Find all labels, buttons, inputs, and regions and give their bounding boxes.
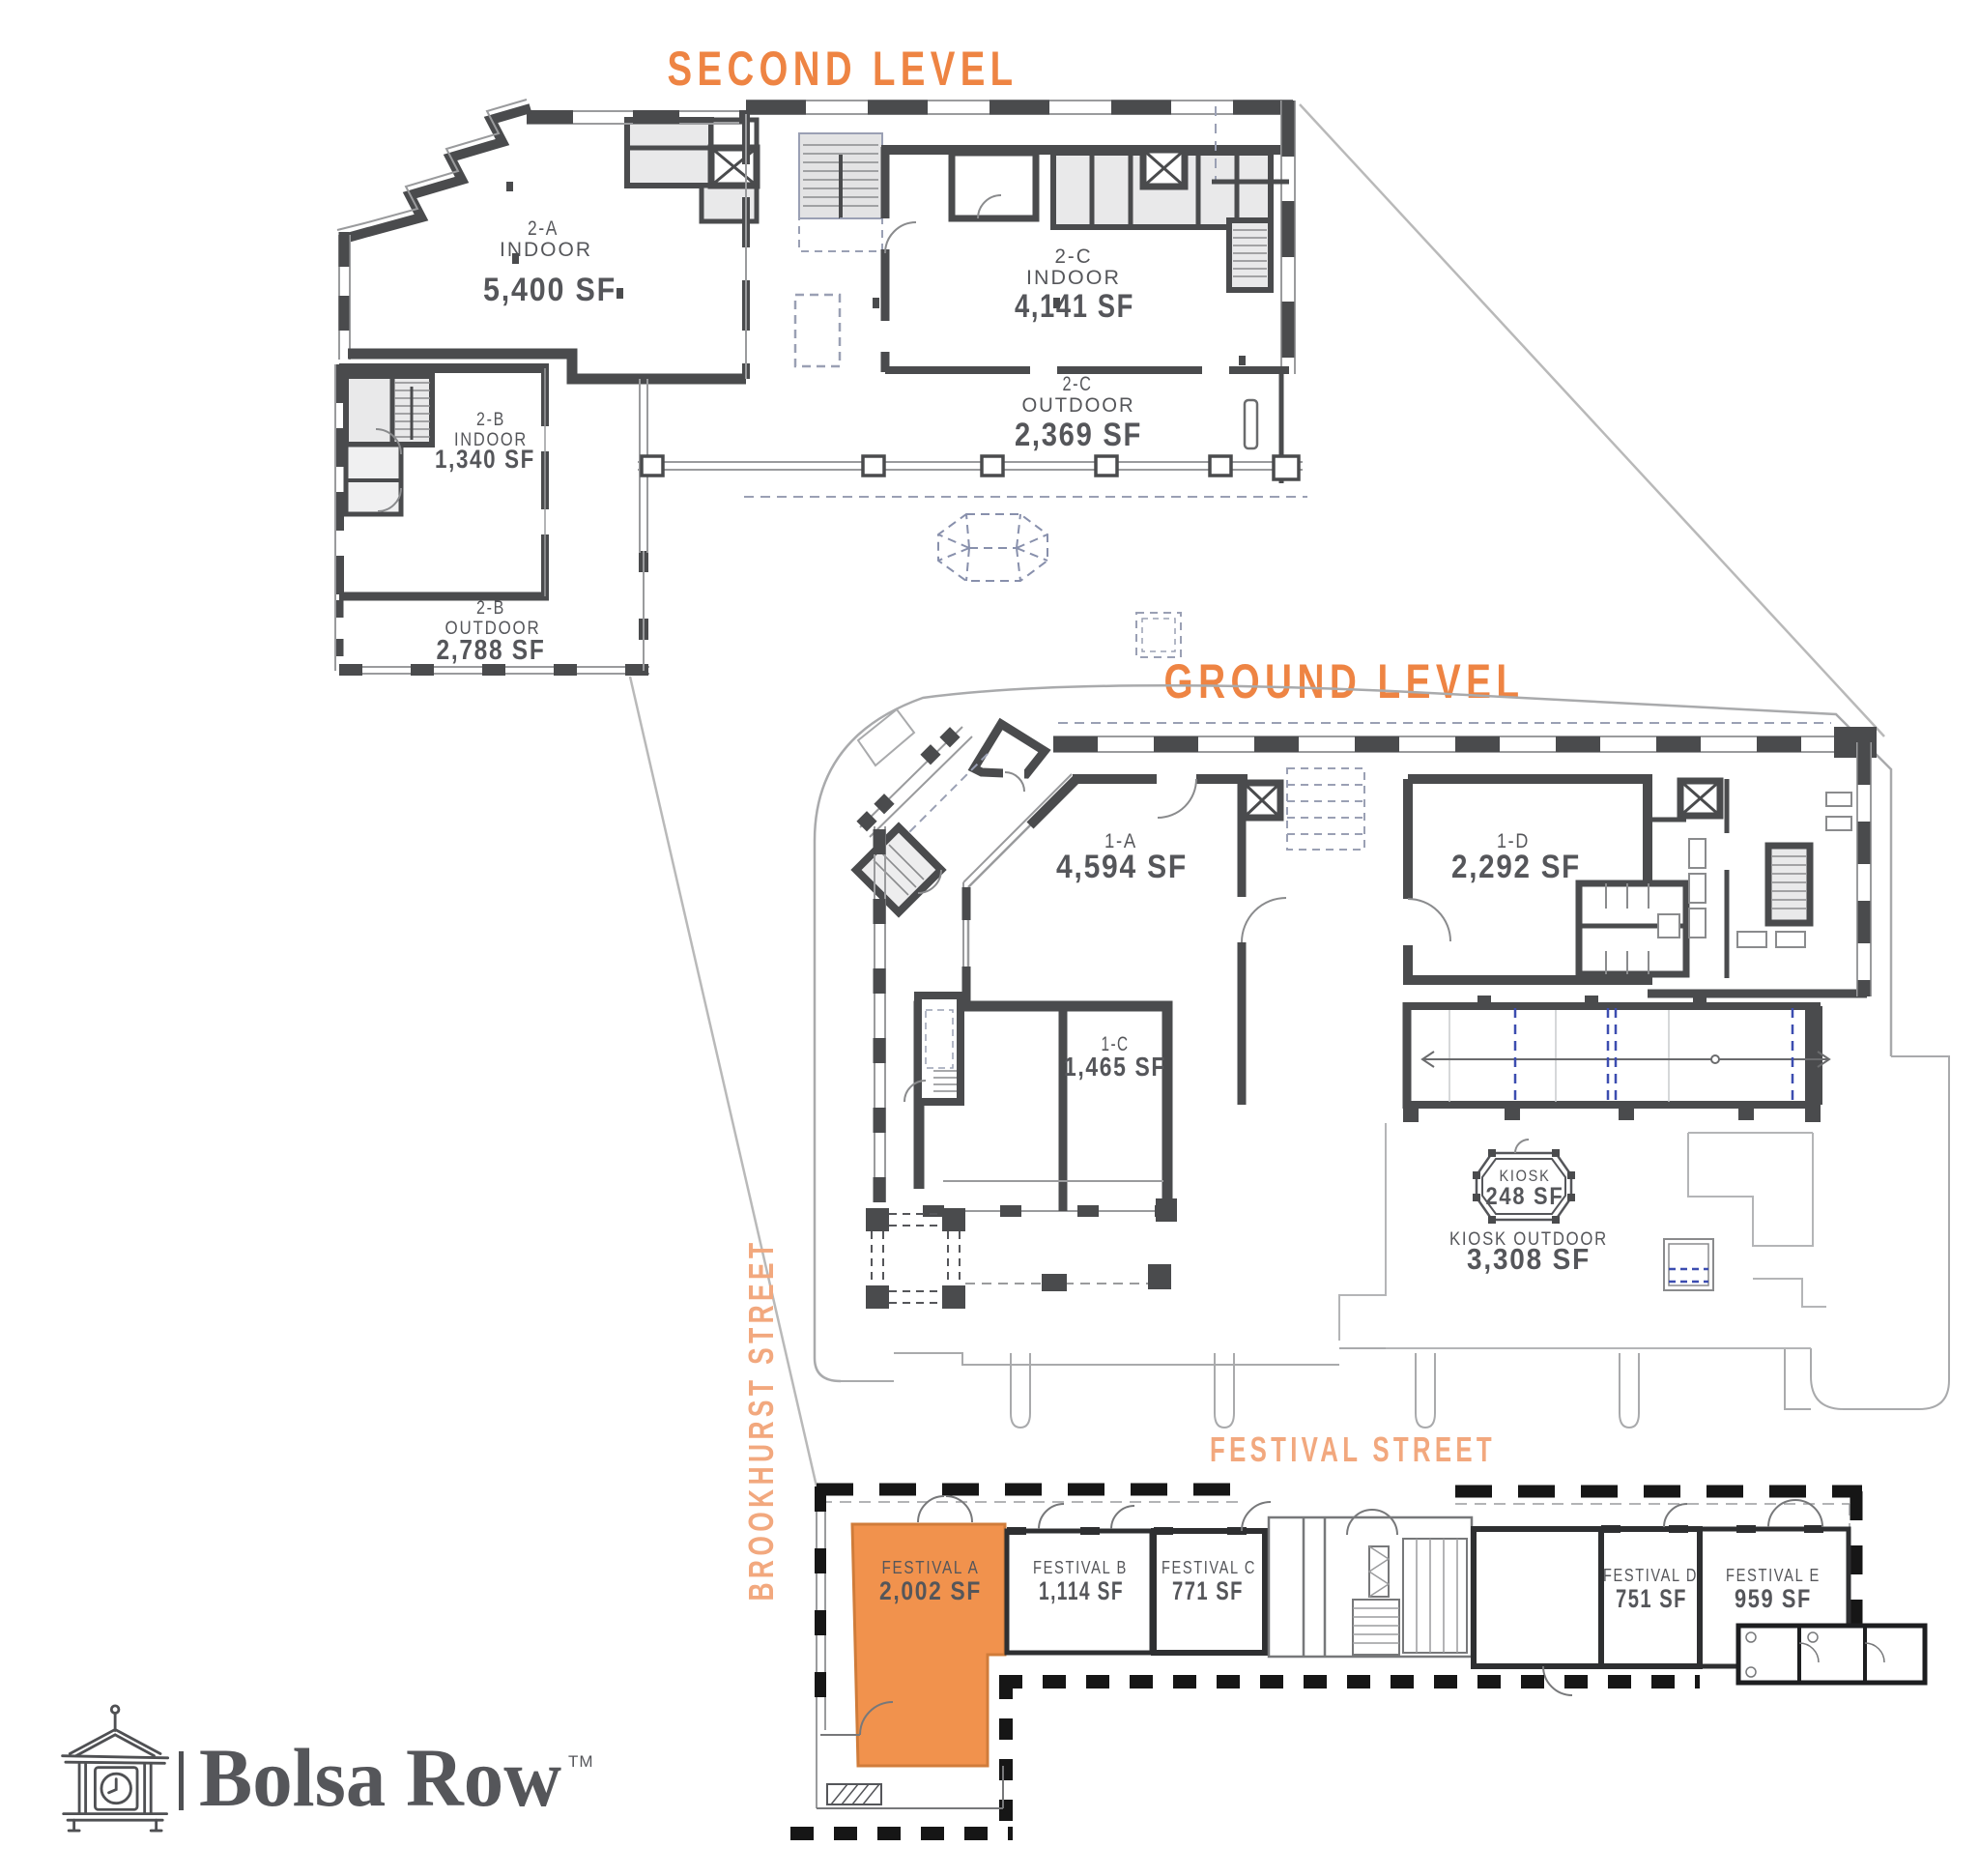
svg-text:2-A: 2-A: [528, 217, 559, 240]
svg-text:FESTIVAL B: FESTIVAL B: [1033, 1558, 1128, 1577]
svg-text:4,594 SF: 4,594 SF: [1056, 849, 1188, 885]
svg-text:1,114 SF: 1,114 SF: [1039, 1576, 1124, 1605]
svg-text:FESTIVAL STREET: FESTIVAL STREET: [1210, 1429, 1496, 1469]
svg-text:2,292 SF: 2,292 SF: [1451, 849, 1581, 885]
svg-text:FESTIVAL C: FESTIVAL C: [1162, 1558, 1256, 1577]
svg-text:2-C: 2-C: [1055, 245, 1093, 268]
svg-text:2-B: 2-B: [476, 598, 505, 619]
svg-text:INDOOR: INDOOR: [1026, 267, 1121, 289]
svg-text:3,308 SF: 3,308 SF: [1467, 1242, 1591, 1276]
svg-text:2-B: 2-B: [476, 410, 505, 430]
svg-text:5,400 SF: 5,400 SF: [483, 272, 617, 308]
svg-text:1,340 SF: 1,340 SF: [435, 445, 535, 474]
svg-text:OUTDOOR: OUTDOOR: [1022, 394, 1135, 417]
svg-text:FESTIVAL A: FESTIVAL A: [882, 1558, 980, 1577]
svg-text:751 SF: 751 SF: [1616, 1584, 1687, 1613]
svg-text:2,788 SF: 2,788 SF: [437, 635, 546, 666]
svg-text:4,141 SF: 4,141 SF: [1015, 288, 1134, 325]
svg-text:BROOKHURST STREET: BROOKHURST STREET: [741, 1239, 781, 1602]
svg-text:TM: TM: [568, 1752, 594, 1771]
svg-text:2,369 SF: 2,369 SF: [1015, 417, 1142, 453]
svg-text:2,002 SF: 2,002 SF: [879, 1576, 982, 1605]
svg-text:771 SF: 771 SF: [1172, 1576, 1244, 1605]
svg-text:GROUND LEVEL: GROUND LEVEL: [1164, 654, 1525, 708]
svg-text:SECOND LEVEL: SECOND LEVEL: [668, 42, 1018, 96]
svg-text:1,465 SF: 1,465 SF: [1064, 1052, 1166, 1082]
svg-text:2-C: 2-C: [1063, 373, 1093, 395]
svg-text:959 SF: 959 SF: [1735, 1584, 1812, 1613]
svg-text:FESTIVAL D: FESTIVAL D: [1603, 1566, 1698, 1585]
svg-text:248 SF: 248 SF: [1486, 1183, 1564, 1210]
svg-text:FESTIVAL E: FESTIVAL E: [1726, 1566, 1821, 1585]
svg-text:Bolsa Row: Bolsa Row: [199, 1731, 561, 1824]
